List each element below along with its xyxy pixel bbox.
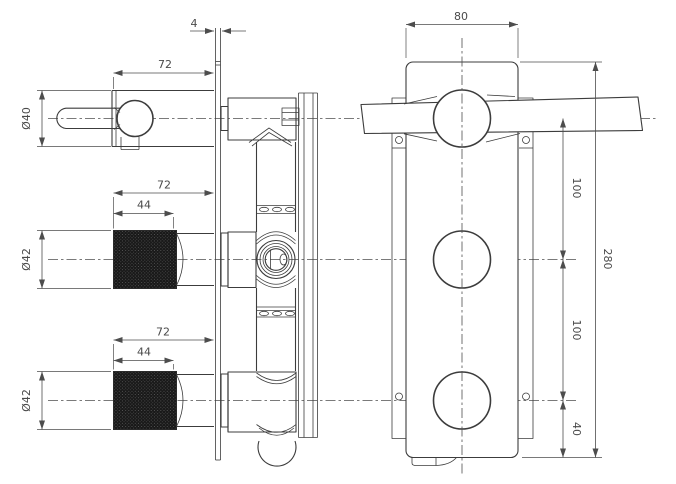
bottom-valve-block — [228, 372, 296, 432]
front-view: 80 100 100 40 280 — [361, 10, 643, 474]
mounting-rail — [299, 93, 318, 438]
dim-plate-height: 280 — [601, 249, 614, 270]
dim-plate-thickness: 4 — [191, 17, 198, 30]
mixer-lever-side — [57, 91, 214, 150]
top-valve-block — [228, 98, 296, 140]
pipe-coupling-upper — [257, 206, 296, 214]
shower-mixer-technical-drawing: 4 72 Ø40 72 44 Ø42 72 — [0, 0, 676, 484]
dim-plate-width: 80 — [454, 10, 468, 23]
dim-bottom-offset: 40 — [570, 422, 583, 436]
side-view: 4 72 Ø40 72 44 Ø42 72 — [20, 17, 318, 466]
side-view-valve-body — [221, 93, 318, 466]
screw-hole-bottom-right — [523, 393, 530, 400]
side-view-dimensions: 4 72 Ø40 72 44 Ø42 72 — [20, 17, 246, 430]
dim-middle-knob-knurl-length: 44 — [137, 199, 151, 212]
dim-lever-diameter: Ø40 — [20, 107, 33, 130]
wall-plate-side — [216, 28, 221, 460]
top-collar — [249, 128, 292, 146]
bottom-valve — [221, 372, 296, 466]
lever-bar — [361, 97, 643, 134]
dim-bottom-knob-length: 72 — [156, 326, 170, 339]
bottom-knob-knurl — [114, 372, 177, 430]
screw-hole-bottom-left — [396, 393, 403, 400]
dim-spacing-bottom: 100 — [570, 320, 583, 341]
outlet-elbow — [258, 441, 296, 466]
pipe-coupling-lower — [257, 307, 296, 317]
screw-hole-top-right — [523, 137, 530, 144]
dim-middle-knob-length: 72 — [157, 179, 171, 192]
dim-bottom-knob-diameter: Ø42 — [20, 389, 33, 412]
ball-socket-notch — [121, 137, 139, 150]
screw-hole-top-left — [396, 137, 403, 144]
outlet-tab-front — [412, 458, 457, 466]
lever-ball-joint — [117, 101, 153, 137]
technical-drawing-page: 4 72 Ø40 72 44 Ø42 72 — [0, 0, 676, 484]
dim-bottom-knob-knurl-length: 44 — [137, 346, 151, 359]
riser-pipe — [257, 142, 296, 371]
middle-knob-knurl — [114, 231, 177, 289]
dim-spacing-top: 100 — [570, 178, 583, 199]
dim-middle-knob-diameter: Ø42 — [20, 248, 33, 271]
dim-lever-length: 72 — [158, 58, 172, 71]
